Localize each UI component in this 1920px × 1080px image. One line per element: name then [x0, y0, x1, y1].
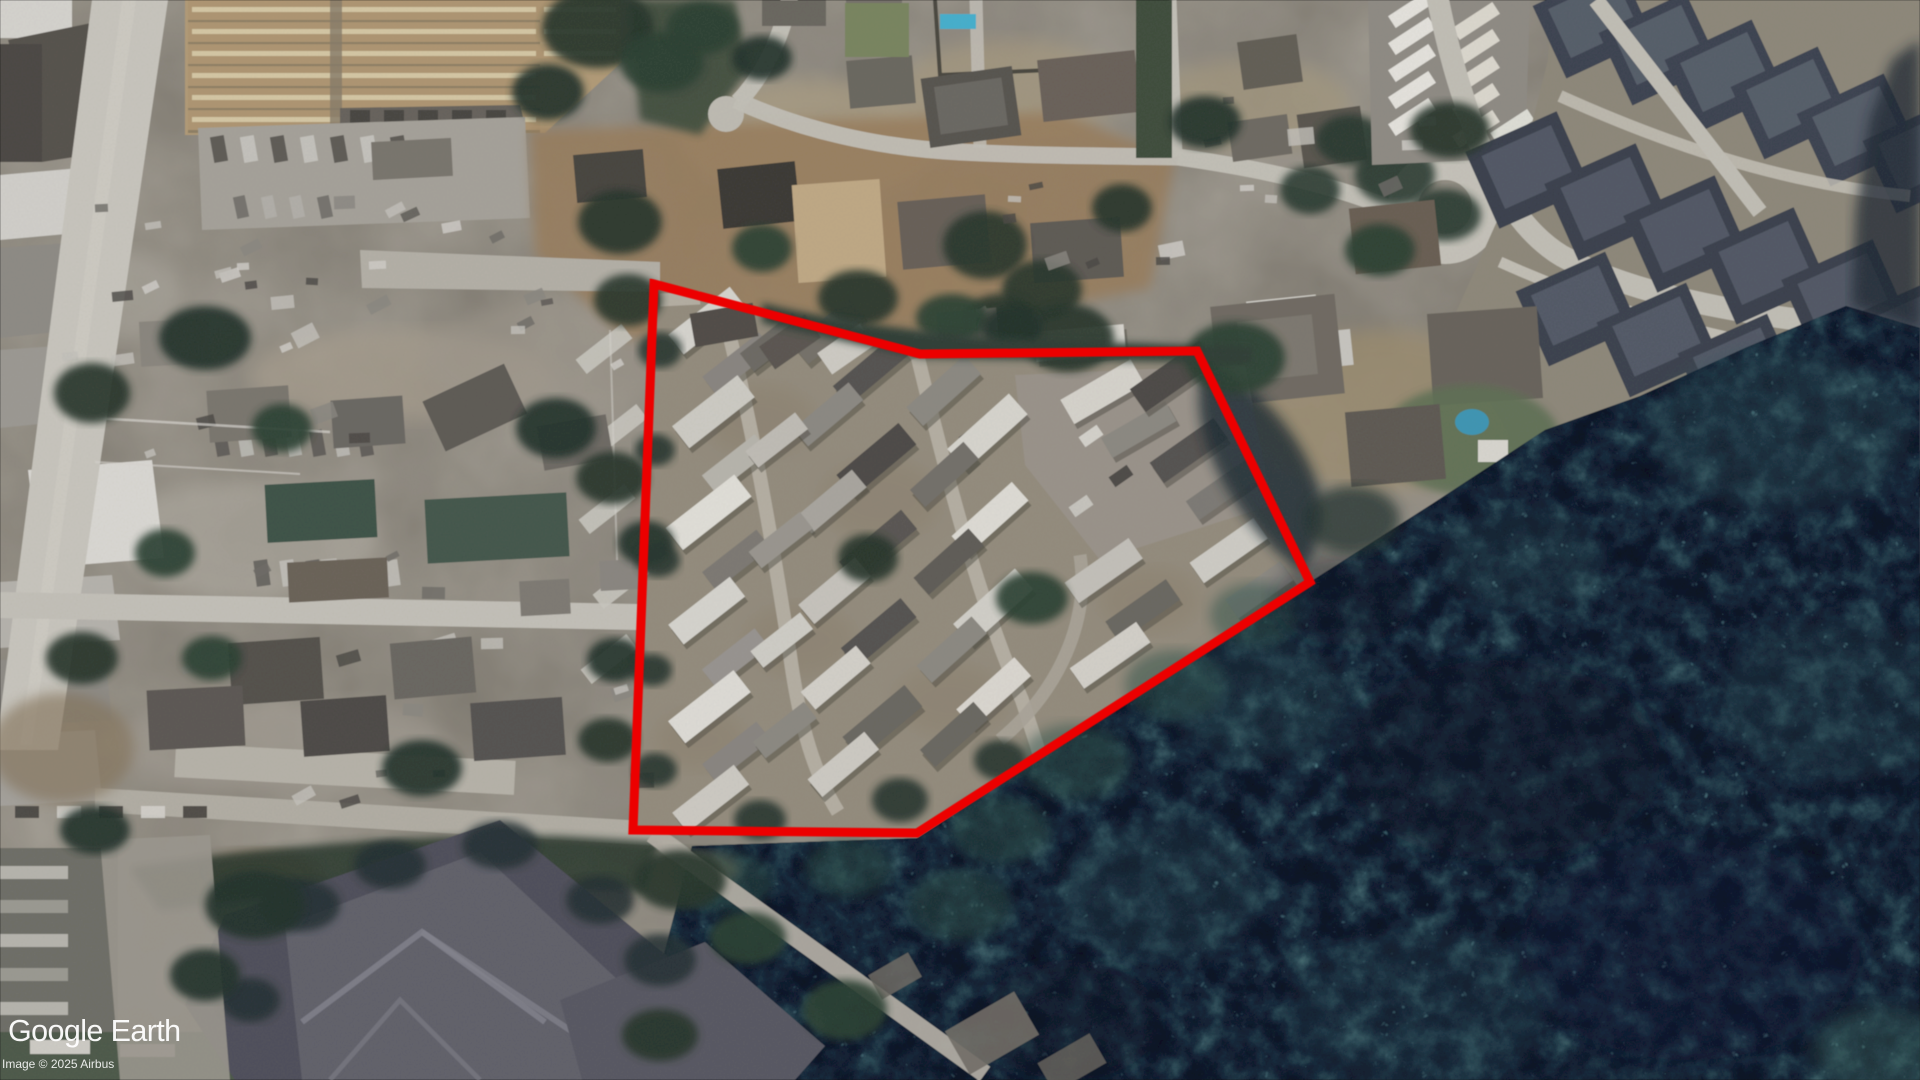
svg-text:Google Earth: Google Earth [8, 1014, 181, 1048]
svg-text:Image © 2025 Airbus: Image © 2025 Airbus [2, 1057, 114, 1071]
